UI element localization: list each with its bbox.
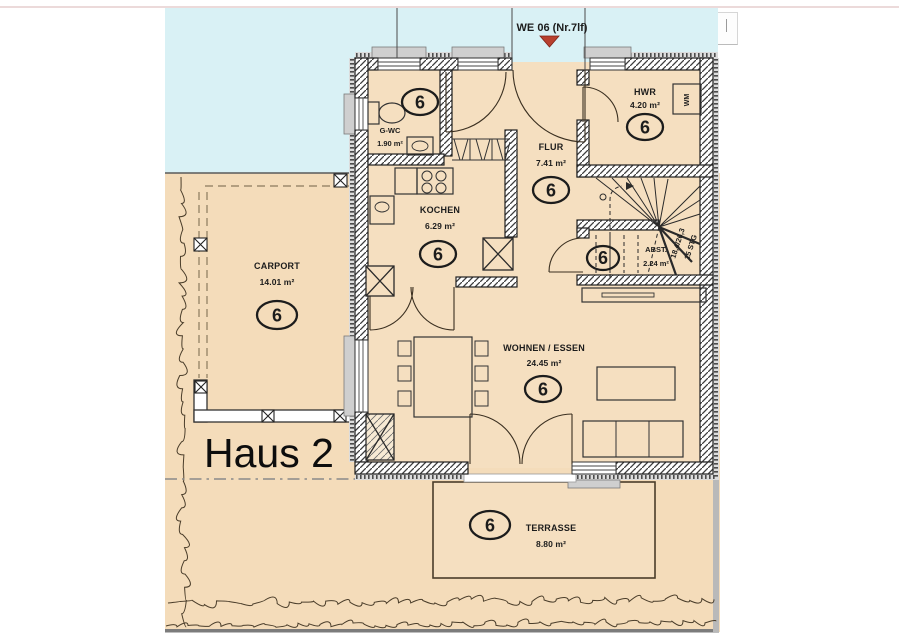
room-name-hwr: HWR (634, 87, 656, 97)
marker-wohnen: 6 (538, 380, 548, 400)
room-area-gwc: 1.90 m² (377, 139, 403, 148)
room-name-terrasse: TERRASSE (526, 523, 577, 533)
unit-label: WE 06 (Nr.7lf) (517, 22, 588, 34)
room-area-wohnen: 24.45 m² (527, 358, 562, 368)
room-name-flur: FLUR (539, 142, 564, 152)
room-name-kochen: KOCHEN (420, 205, 460, 215)
marker-flur: 6 (546, 181, 556, 201)
room-name-abst: ABST. (645, 245, 667, 254)
room-name-carport: CARPORT (254, 261, 300, 271)
floorplan-drawing: WE 06 (Nr.7lf) G-WC 1.90 m² HWR 4.20 m² … (0, 0, 899, 635)
room-name-gwc: G-WC (380, 126, 401, 135)
marker-abst: 6 (598, 248, 608, 268)
room-area-hwr: 4.20 m² (630, 100, 660, 110)
room-name-wohnen: WOHNEN / ESSEN (503, 343, 585, 353)
room-area-flur: 7.41 m² (536, 158, 566, 168)
marker-gwc: 6 (415, 93, 425, 113)
washing-machine-label: WM (684, 94, 691, 107)
room-area-abst: 2.24 m² (643, 259, 669, 268)
marker-kochen: 6 (433, 245, 443, 265)
room-area-carport: 14.01 m² (260, 277, 295, 287)
floorplan-page: WE 06 (Nr.7lf) G-WC 1.90 m² HWR 4.20 m² … (0, 0, 899, 635)
marker-carport: 6 (272, 306, 282, 326)
house-title: Haus 2 (204, 430, 334, 476)
room-area-kochen: 6.29 m² (425, 221, 455, 231)
room-area-terrasse: 8.80 m² (536, 539, 566, 549)
marker-hwr: 6 (640, 118, 650, 138)
marker-terrasse: 6 (485, 516, 495, 536)
